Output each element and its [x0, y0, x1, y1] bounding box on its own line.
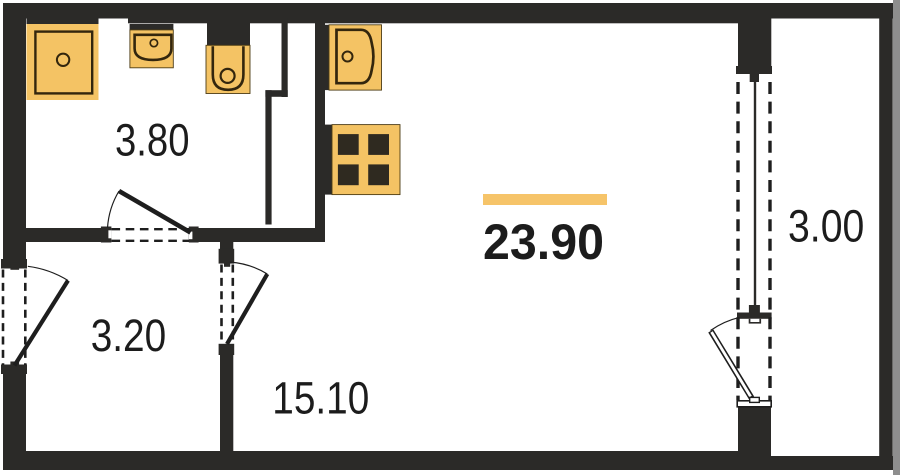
svg-text:23.90: 23.90: [483, 214, 604, 270]
svg-text:3.80: 3.80: [115, 114, 190, 165]
svg-text:3.20: 3.20: [91, 310, 167, 361]
svg-text:3.00: 3.00: [788, 200, 864, 251]
svg-text:15.10: 15.10: [272, 372, 369, 423]
